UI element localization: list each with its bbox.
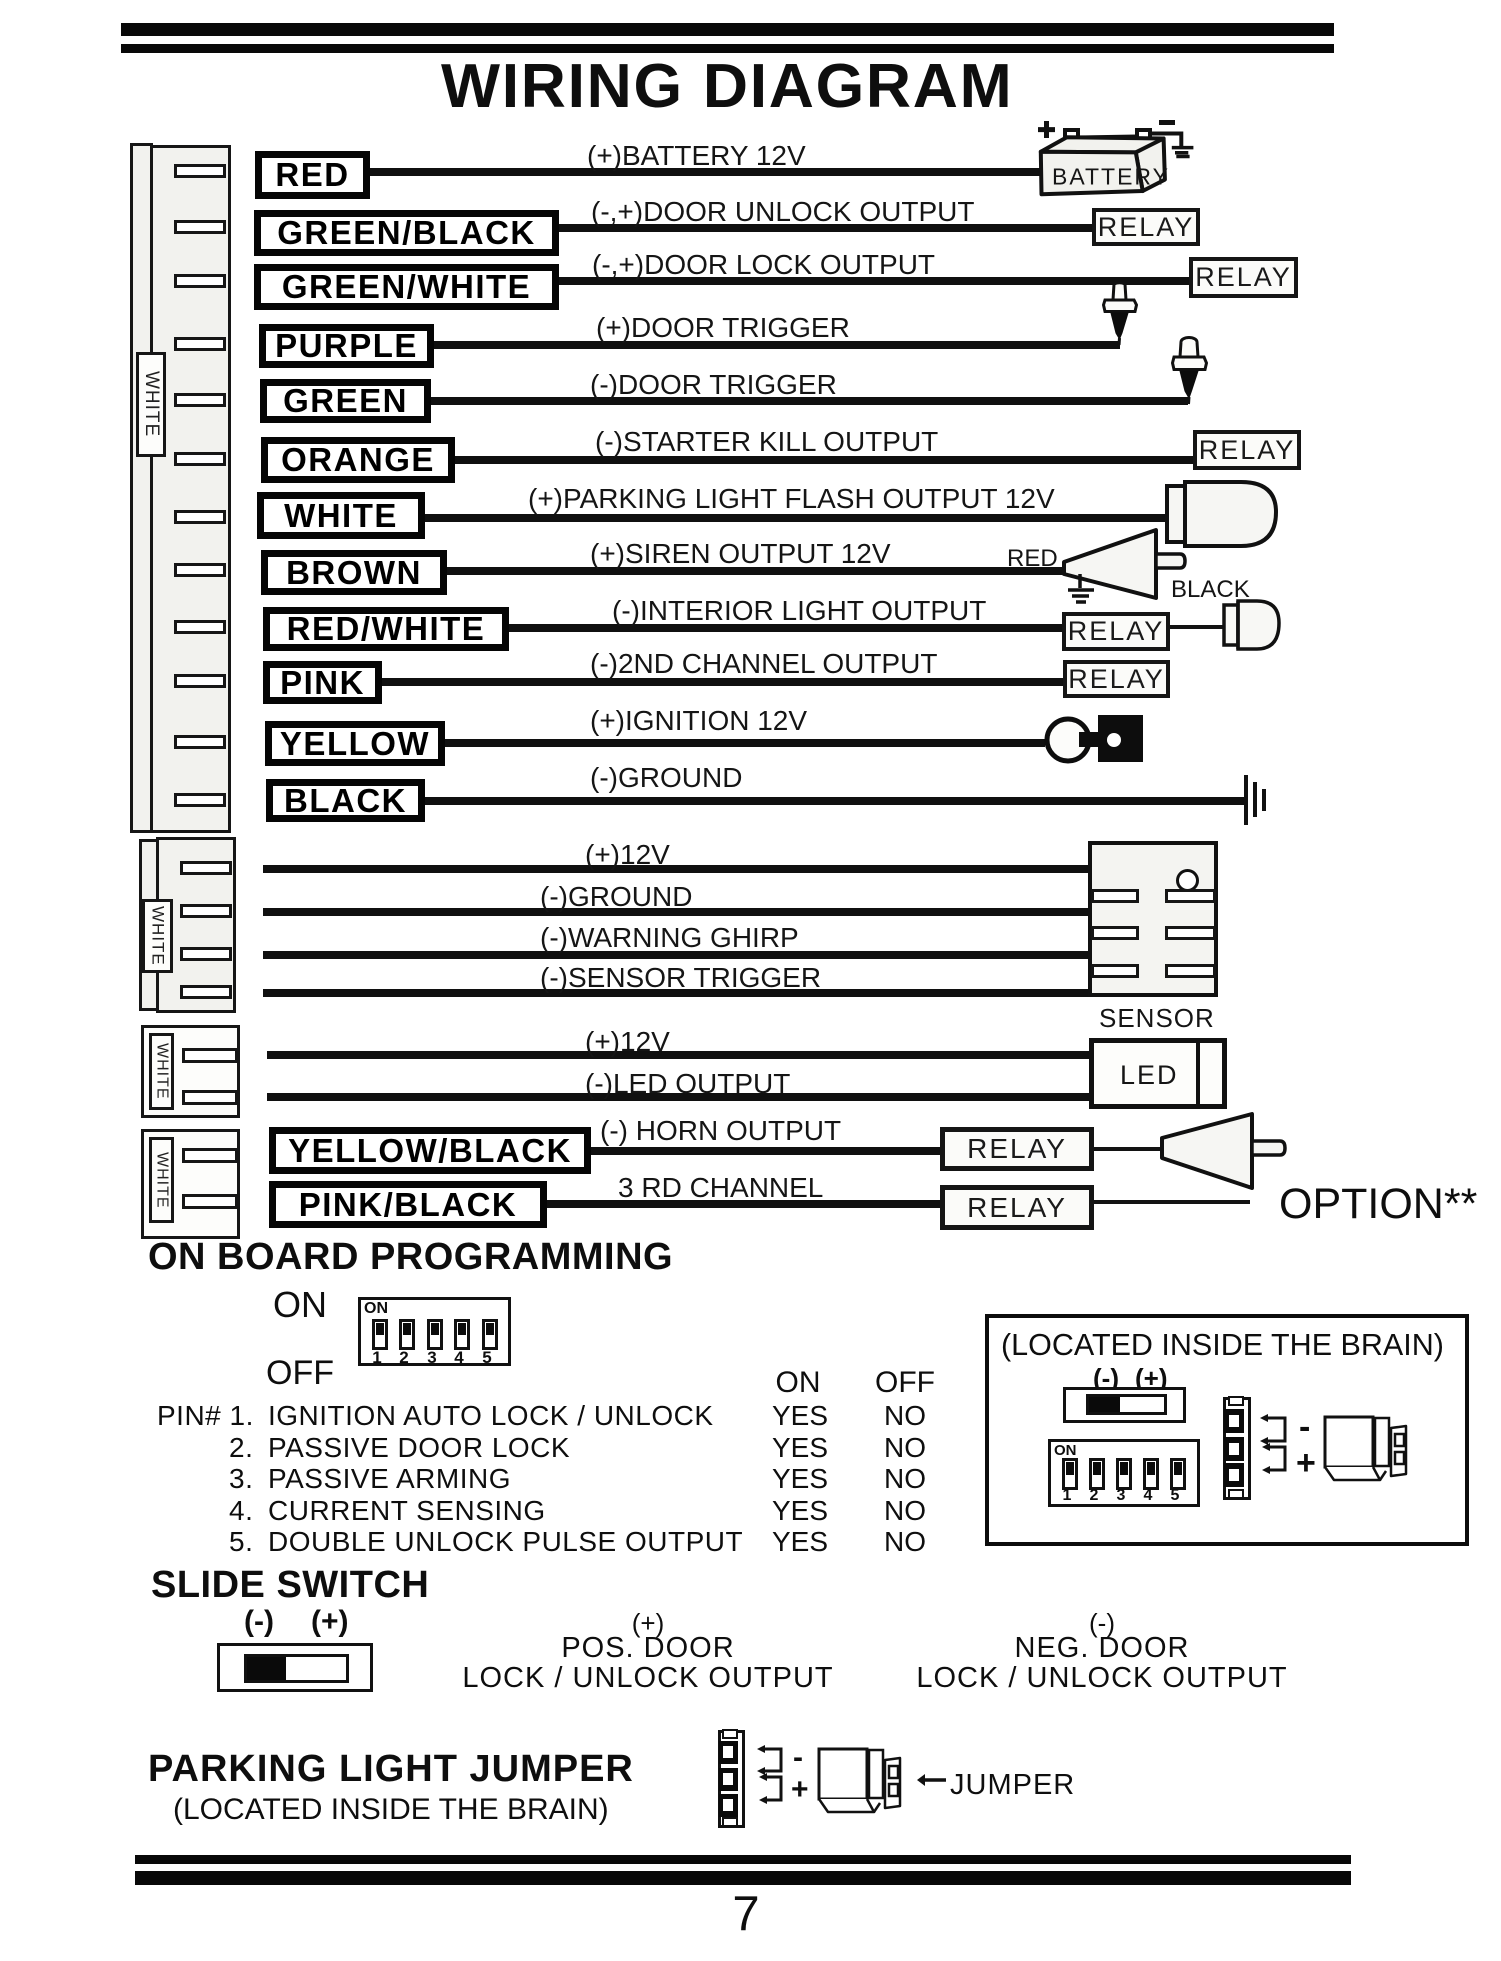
svg-text:BATTERY: BATTERY bbox=[1052, 164, 1170, 190]
